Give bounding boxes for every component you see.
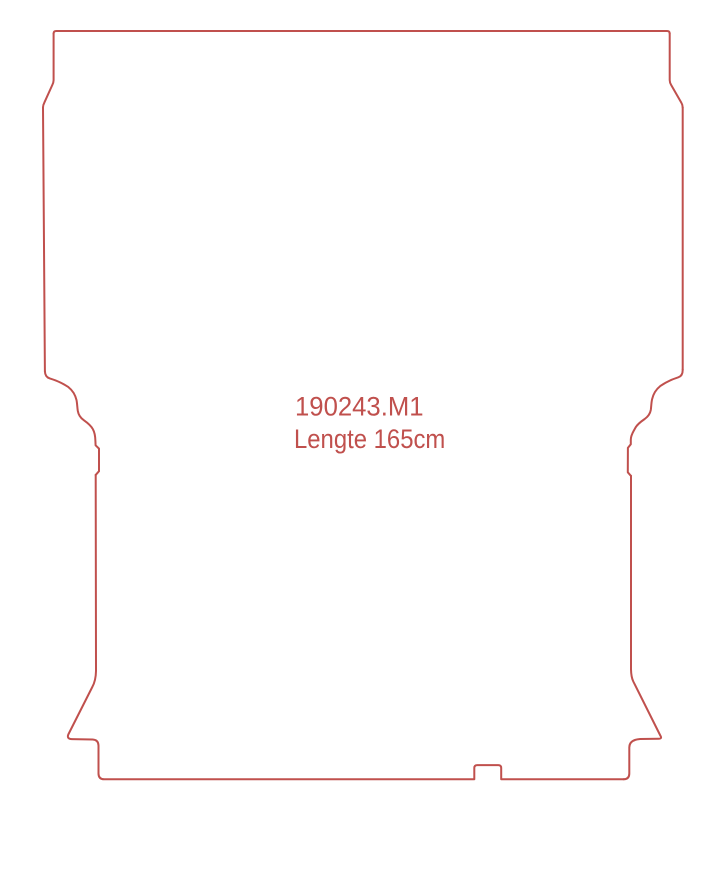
svg-text:190243.M1: 190243.M1 <box>295 392 424 422</box>
svg-text:Lengte 165cm: Lengte 165cm <box>294 424 445 454</box>
